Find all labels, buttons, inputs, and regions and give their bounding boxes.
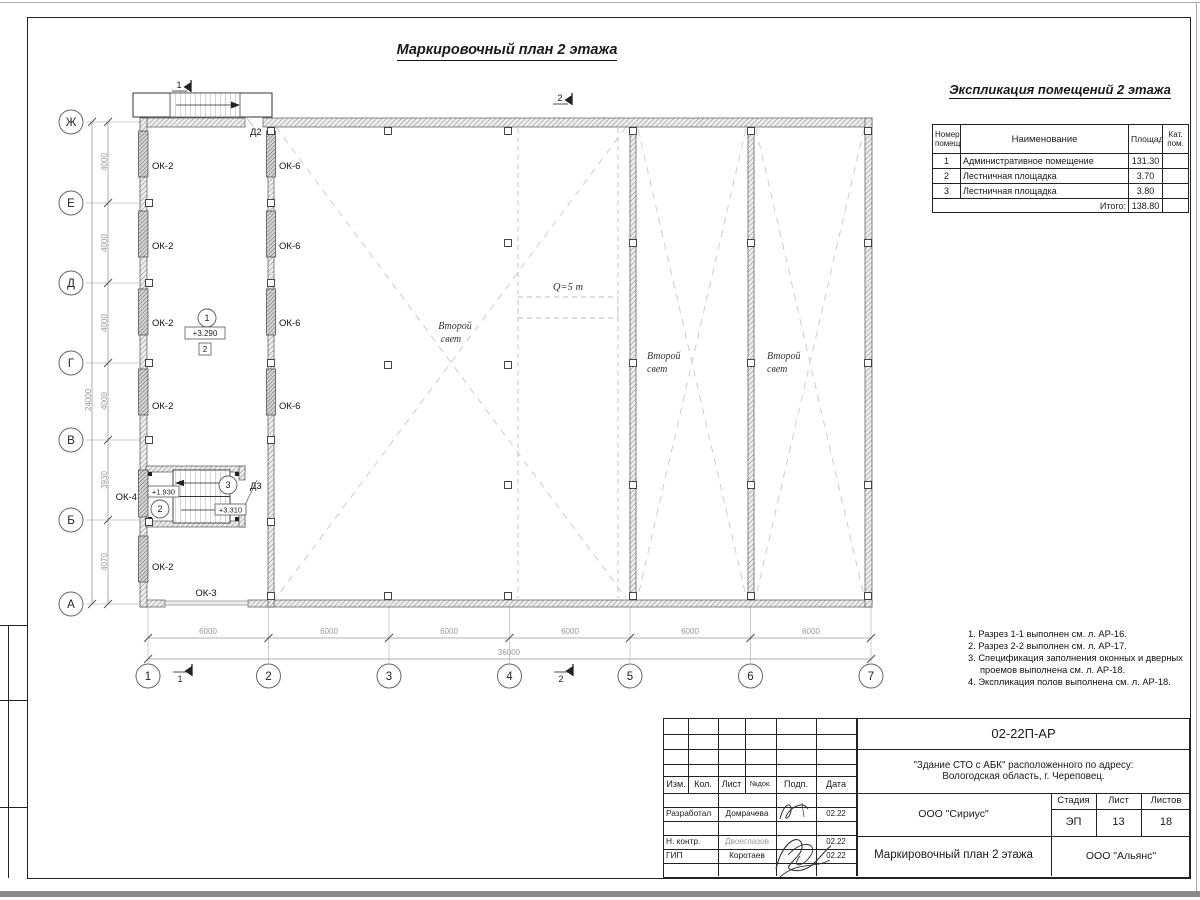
room-area-cell: 3.80: [1129, 184, 1163, 199]
stamp-date: 02.22: [816, 807, 856, 821]
axis-row-label: Б: [67, 515, 75, 527]
axis-row-label: Г: [68, 358, 75, 370]
external-stair: [133, 93, 272, 117]
axis-row-label: В: [67, 435, 75, 447]
section-label: 2: [558, 674, 563, 684]
stamp-line: [664, 734, 856, 735]
dimension-ticks: [88, 118, 875, 663]
room-name-cell: Лестничная площадка: [961, 184, 1129, 199]
dim-value: 4070: [100, 553, 109, 571]
window-label-ok2: ОК-2: [152, 562, 173, 573]
axis-col-label: 3: [386, 671, 392, 683]
schedule-col-area: Площадь: [1129, 125, 1163, 154]
schedule-row: 1 Административное помещение 131.30: [933, 154, 1189, 169]
room-area-cell: 3.70: [1129, 169, 1163, 184]
window-label-ok2: ОК-2: [152, 161, 173, 172]
room-number: 1: [204, 313, 209, 323]
stamp-line: [664, 863, 856, 864]
window-label-ok4: ОК-4: [116, 492, 137, 503]
schedule-total-cat: [1163, 199, 1189, 213]
stamp-role: Разработал: [666, 807, 718, 821]
door-label-d2: Д2: [250, 127, 262, 138]
axis-col-label: 1: [145, 671, 151, 683]
schedule-row: 2 Лестничная площадка 3.70: [933, 169, 1189, 184]
stamp-name: Коротаев: [718, 849, 776, 863]
stamp-col-izm: Изм.: [664, 776, 688, 793]
section-label: 1: [176, 80, 181, 90]
stamp-line: [664, 749, 856, 750]
schedule-col-name: Наименование: [961, 125, 1129, 154]
dim-value: 4000: [100, 392, 109, 410]
axis-col-label: 6: [747, 671, 753, 683]
design-org: ООО "Сириус": [856, 793, 1051, 836]
room-cat-cell: [1163, 169, 1189, 184]
axis-col-label: 7: [868, 671, 874, 683]
axis-col-label: 5: [627, 671, 633, 683]
stage-value: ЭП: [1051, 809, 1096, 836]
stamp-col-data: Дата: [816, 776, 856, 793]
sheet-number: 13: [1096, 809, 1141, 836]
room-name-cell: Лестничная площадка: [961, 169, 1129, 184]
dim-value: 6000: [802, 627, 820, 636]
second-light-label: Второй: [647, 351, 680, 362]
second-light-label: свет: [441, 334, 461, 345]
stamp-col-ndok: №док.: [745, 776, 776, 793]
schedule-total-label: Итого:: [933, 199, 1129, 213]
second-light-label: Второй: [438, 321, 471, 332]
axis-col-label: 4: [506, 671, 513, 683]
stamp-line: [664, 764, 856, 765]
dim-value: 4000: [100, 153, 109, 171]
room-cat-cell: [1163, 184, 1189, 199]
door-label-d3: Д3: [250, 481, 262, 492]
notes-list: 1. Разрез 1-1 выполнен см. л. АР-16. 2. …: [968, 629, 1200, 688]
elevation-value: +3.310: [219, 506, 242, 515]
stamp-date: 02.22: [816, 849, 856, 863]
drawing-name: Маркировочный план 2 этажа: [856, 836, 1051, 876]
schedule-title: Экспликация помещений 2 этажа: [932, 82, 1188, 97]
stamp-name: Домрачева: [718, 807, 776, 821]
axis-row-label: Ж: [66, 117, 77, 129]
stamp-line: [664, 821, 856, 822]
dim-value: 6000: [320, 627, 338, 636]
window-label-ok6: ОК-6: [279, 318, 300, 329]
dim-value: 6000: [440, 627, 458, 636]
sheets-total: 18: [1141, 809, 1191, 836]
window-label-ok2: ОК-2: [152, 241, 173, 252]
schedule-title-text: Экспликация помещений 2 этажа: [949, 82, 1171, 99]
second-light-label: свет: [767, 364, 787, 375]
stamp-line: [664, 793, 856, 794]
stamp-col-podp: Подп.: [776, 776, 816, 793]
room-number: 2: [157, 504, 162, 514]
second-light-label: Второй: [767, 351, 800, 362]
window-label-ok2: ОК-2: [152, 318, 173, 329]
crane-runway: [518, 128, 618, 598]
window-label-ok6: ОК-6: [279, 241, 300, 252]
dim-value: 6000: [199, 627, 217, 636]
window-label-ok6: ОК-6: [279, 401, 300, 412]
room-number-cell: 2: [933, 169, 961, 184]
column-markers: [146, 128, 872, 600]
sheet-label: Лист: [1096, 793, 1141, 809]
note-line: 1. Разрез 1-1 выполнен см. л. АР-16.: [968, 629, 1200, 641]
room-cat-cell: [1163, 154, 1189, 169]
project-description: "Здание СТО с АБК" расположенного по адр…: [856, 749, 1191, 793]
section-label: 2: [557, 93, 562, 103]
dim-value: 3930: [100, 471, 109, 489]
stamp-col-kol: Кол.: [688, 776, 718, 793]
void-cross-lines: [276, 127, 864, 598]
axis-row-label: Е: [67, 198, 75, 210]
axis-row-label: А: [67, 599, 75, 611]
room-schedule: Номер помещ. Наименование Площадь Кат. п…: [932, 124, 1189, 213]
window-label-ok6: ОК-6: [279, 161, 300, 172]
sheets-label: Листов: [1141, 793, 1191, 809]
stamp-role: Н. контр.: [666, 835, 718, 849]
axis-col-label: 2: [265, 671, 271, 683]
dim-value: 24000: [84, 388, 93, 411]
dim-value: 4000: [100, 234, 109, 252]
section-label: 1: [177, 674, 182, 684]
document-code: 02-22П-АР: [856, 719, 1191, 749]
schedule-total-area: 138.80: [1129, 199, 1163, 213]
room-number-cell: 3: [933, 184, 961, 199]
note-line: проемов выполнена см. л. АР-18.: [968, 665, 1200, 677]
window-ok3: [165, 601, 248, 605]
dim-value: 36000: [498, 648, 521, 657]
dim-value: 6000: [681, 627, 699, 636]
schedule-total-row: Итого: 138.80: [933, 199, 1189, 213]
stamp-role: ГИП: [666, 849, 718, 863]
dim-value: 4000: [100, 314, 109, 332]
elevation-value: +1.930: [152, 488, 175, 497]
note-line: 2. Разрез 2-2 выполнен см. л. АР-17.: [968, 641, 1200, 653]
axis-row-label: Д: [67, 278, 75, 290]
note-line: 3. Спецификация заполнения оконных и две…: [968, 653, 1200, 665]
crane-capacity-label: Q=5 т: [553, 282, 584, 293]
section-marks: [172, 80, 573, 676]
room-number-cell: 1: [933, 154, 961, 169]
stage-label: Стадия: [1051, 793, 1096, 809]
elevation-value: +3.290: [193, 329, 218, 338]
stamp-col-list: Лист: [718, 776, 745, 793]
room-name-cell: Административное помещение: [961, 154, 1129, 169]
window-label-ok3: ОК-3: [195, 588, 216, 599]
room-number: 3: [225, 480, 230, 490]
contractor-org: ООО "Альянс": [1051, 836, 1191, 876]
second-light-label: свет: [647, 364, 667, 375]
floor-type-mark: 2: [203, 345, 208, 354]
drawing-sheet: Маркировочный план 2 этажа: [0, 0, 1200, 900]
dim-value: 6000: [561, 627, 579, 636]
door-d2-leader: [246, 117, 254, 127]
schedule-col-cat: Кат. пом.: [1163, 125, 1189, 154]
void-labels: Второй свет Второй свет Второй свет Q=5 …: [438, 282, 800, 375]
note-line: 4. Экспликация полов выполнена см. л. АР…: [968, 677, 1200, 689]
schedule-col-number: Номер помещ.: [933, 125, 961, 154]
stamp-line: [776, 719, 777, 876]
dimension-values: 4000 4000 4000 4000 3930 4070 24000 6000…: [84, 153, 820, 657]
stamp-date: 02.22: [816, 835, 856, 849]
window-label-ok2: ОК-2: [152, 401, 173, 412]
title-block: Изм. Кол. Лист №док. Подп. Дата Разработ…: [663, 718, 1190, 878]
schedule-row: 3 Лестничная площадка 3.80: [933, 184, 1189, 199]
room-area-cell: 131.30: [1129, 154, 1163, 169]
stamp-name: Двоеглазов: [718, 835, 776, 849]
